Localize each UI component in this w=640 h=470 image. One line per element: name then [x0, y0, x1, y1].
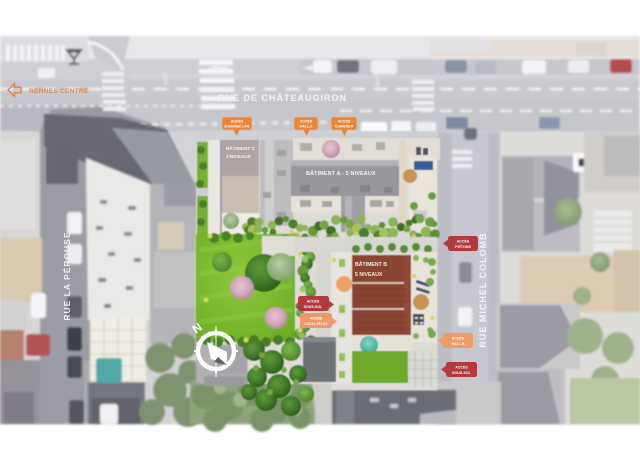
- svg-text:BÂTIMENT A - 5 NIVEAUX: BÂTIMENT A - 5 NIVEAUX: [306, 170, 376, 177]
- svg-text:LOCAL VÉLOS: LOCAL VÉLOS: [305, 321, 329, 326]
- svg-text:RUE DE CHÂTEAUGIRON: RUE DE CHÂTEAUGIRON: [218, 92, 347, 103]
- svg-text:3 NIVEAUX: 3 NIVEAUX: [226, 154, 252, 159]
- svg-text:RENNES CENTRE: RENNES CENTRE: [29, 88, 89, 95]
- svg-text:BÂTIMENT B: BÂTIMENT B: [355, 261, 387, 268]
- svg-text:ACCÈS: ACCÈS: [310, 316, 323, 321]
- svg-text:ACCÈS: ACCÈS: [457, 239, 470, 244]
- svg-text:RUE MICHEL COLOMB: RUE MICHEL COLOMB: [478, 232, 488, 347]
- svg-text:HALL B: HALL B: [451, 342, 465, 346]
- svg-text:ACCÈS: ACCÈS: [452, 336, 465, 341]
- svg-text:CHANTIER: CHANTIER: [335, 125, 354, 129]
- svg-text:BÂTIMENT C: BÂTIMENT C: [226, 145, 256, 151]
- svg-text:RUE LA PÉROUSE: RUE LA PÉROUSE: [62, 231, 72, 320]
- svg-text:SOUS-SOL: SOUS-SOL: [452, 371, 472, 375]
- svg-text:ACCÈS: ACCÈS: [307, 299, 320, 304]
- svg-text:ACCÈS: ACCÈS: [338, 119, 351, 124]
- svg-text:5 NIVEAUX: 5 NIVEAUX: [355, 272, 383, 278]
- svg-text:SOUS-SOL: SOUS-SOL: [304, 305, 324, 309]
- svg-text:ACCÈS: ACCÈS: [455, 365, 468, 370]
- svg-text:CHANTIER LIVR.: CHANTIER LIVR.: [224, 125, 250, 129]
- svg-text:ACCÈS: ACCÈS: [231, 119, 244, 124]
- svg-text:ACCÈS: ACCÈS: [300, 119, 313, 124]
- svg-text:PIÉTONS: PIÉTONS: [455, 244, 471, 249]
- svg-text:HALL A: HALL A: [300, 125, 313, 129]
